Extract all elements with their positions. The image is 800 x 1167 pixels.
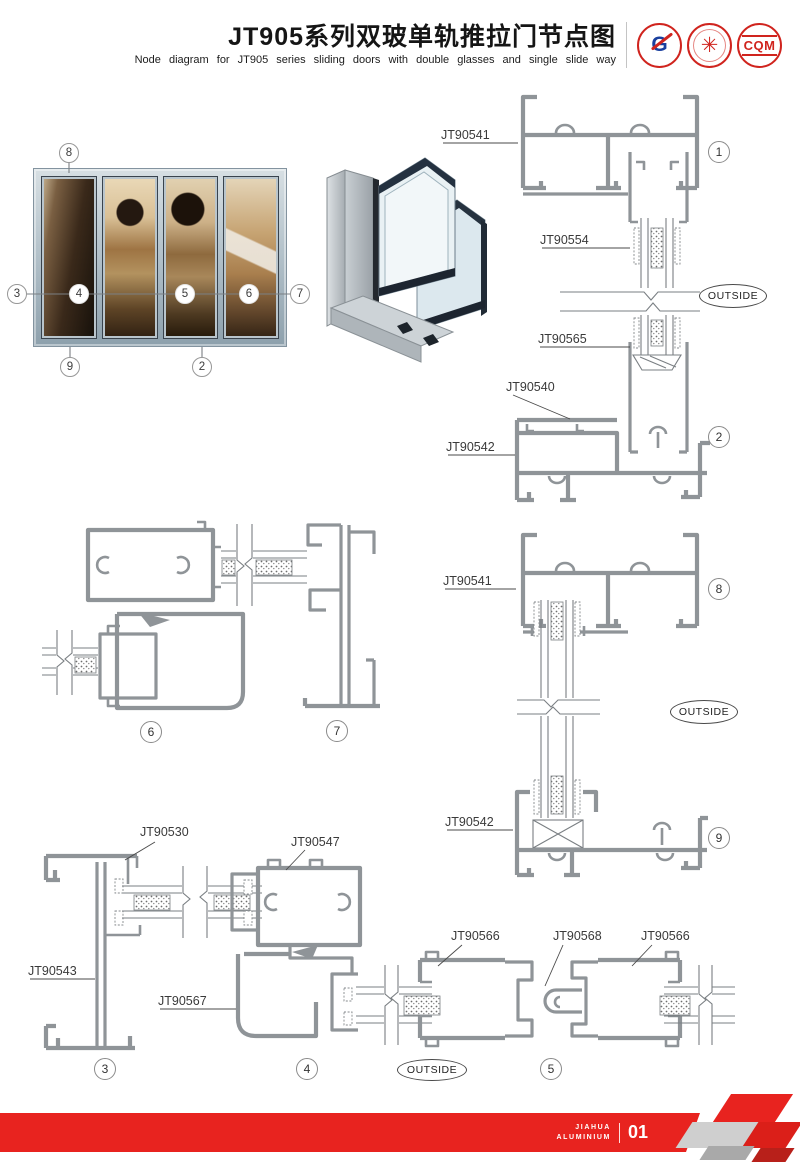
section-number-4: 4 (296, 1058, 318, 1080)
photo-callout-2: 2 (192, 357, 212, 377)
footer-page-number: 01 (628, 1122, 648, 1143)
section-4-drawing (232, 860, 360, 1036)
outside-label-3: OUTSIDE (397, 1059, 467, 1081)
section-number-7: 7 (326, 720, 348, 742)
footer-bar: JIAHUA ALUMINIUM 01 (0, 1113, 700, 1152)
section-6-drawing (42, 522, 307, 708)
photo-callout-3: 3 (7, 284, 27, 304)
footer-divider (619, 1123, 620, 1143)
photo-callout-5: 5 (175, 284, 195, 304)
section-9-drawing (515, 716, 708, 875)
page-subtitle: Node diagram for JT905 series sliding do… (135, 54, 616, 66)
cqm-logo-icon: CQM (737, 23, 782, 68)
outside-label-2: OUTSIDE (670, 700, 738, 724)
part-label-jt90566-right: JT90566 (641, 929, 690, 943)
badge-glyph: ✳ (701, 33, 719, 58)
part-label-jt90542-top: JT90542 (446, 440, 495, 454)
door-panel-4 (223, 176, 279, 339)
door-panel-2 (102, 176, 158, 339)
footer-brand-line2: ALUMINIUM (557, 1133, 611, 1142)
photo-callout-7: 7 (290, 284, 310, 304)
glass-break-8 (517, 700, 600, 714)
footer-brand-line1: JIAHUA (557, 1123, 611, 1132)
section-number-1: 1 (708, 141, 730, 163)
glass-break-1 (560, 292, 700, 311)
gb-certification-logo-icon: G (637, 23, 682, 68)
section-number-2: 2 (708, 426, 730, 448)
outside-label-1: OUTSIDE (699, 284, 767, 308)
part-label-jt90547: JT90547 (291, 835, 340, 849)
glass-strip-4-5 (356, 965, 440, 1045)
header-text: JT905系列双玻单轨推拉门节点图 Node diagram for JT905… (135, 24, 616, 67)
section-number-9: 9 (708, 827, 730, 849)
section-7-drawing (305, 525, 380, 706)
part-label-jt90566-left: JT90566 (451, 929, 500, 943)
section-8-drawing (523, 535, 697, 698)
section-number-5: 5 (540, 1058, 562, 1080)
part-label-jt90567: JT90567 (158, 994, 207, 1008)
header: JT905系列双玻单轨推拉门节点图 Node diagram for JT905… (135, 22, 782, 68)
door-panel-3 (163, 176, 219, 339)
photo-callout-6: 6 (239, 284, 259, 304)
certification-logos: G ✳ CQM (637, 23, 782, 68)
door-panel-1 (41, 176, 97, 339)
part-label-jt90541-top: JT90541 (441, 128, 490, 142)
footer-shape-gray2 (699, 1146, 754, 1160)
header-divider (626, 22, 627, 68)
part-label-jt90541-mid: JT90541 (443, 574, 492, 588)
footer-brand: JIAHUA ALUMINIUM (557, 1123, 611, 1141)
part-label-jt90568: JT90568 (553, 929, 602, 943)
part-label-jt90543: JT90543 (28, 964, 77, 978)
profile-3d-render (305, 148, 495, 383)
catalog-page: JT905系列双玻单轨推拉门节点图 Node diagram for JT905… (0, 0, 800, 1167)
footer-shape-red3 (751, 1148, 794, 1162)
photo-callout-8: 8 (59, 143, 79, 163)
part-label-jt90530: JT90530 (140, 825, 189, 839)
part-label-jt90542-bottom: JT90542 (445, 815, 494, 829)
section-3-drawing (46, 856, 262, 1048)
door-photo (33, 168, 287, 347)
section-number-8: 8 (708, 578, 730, 600)
part-label-jt90554: JT90554 (540, 233, 589, 247)
section-number-6: 6 (140, 721, 162, 743)
cqm-logo-text: CQM (742, 35, 778, 56)
section-1-drawing (523, 97, 697, 288)
section-number-3: 3 (94, 1058, 116, 1080)
photo-callout-9: 9 (60, 357, 80, 377)
photo-callout-4: 4 (69, 284, 89, 304)
part-label-jt90565: JT90565 (538, 332, 587, 346)
section-5-drawing (420, 952, 735, 1046)
quality-badge-logo-icon: ✳ (687, 23, 732, 68)
page-title: JT905系列双玻单轨推拉门节点图 (135, 24, 616, 52)
part-label-jt90540: JT90540 (506, 380, 555, 394)
footer-shape-red1 (713, 1094, 793, 1122)
